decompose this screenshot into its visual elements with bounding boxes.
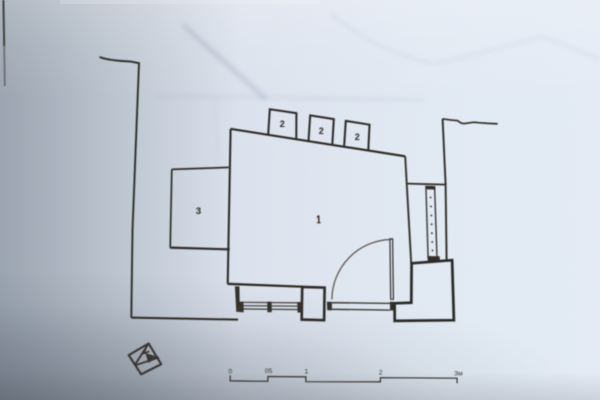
svg-text:2: 2 — [379, 369, 383, 376]
svg-text:2: 2 — [319, 126, 324, 136]
svg-text:05: 05 — [265, 368, 273, 375]
svg-text:3: 3 — [196, 206, 201, 217]
svg-text:0: 0 — [228, 368, 232, 375]
svg-text:1: 1 — [305, 368, 309, 375]
svg-text:2: 2 — [280, 119, 285, 129]
svg-text:3м: 3м — [454, 371, 463, 378]
svg-text:2: 2 — [355, 132, 360, 142]
